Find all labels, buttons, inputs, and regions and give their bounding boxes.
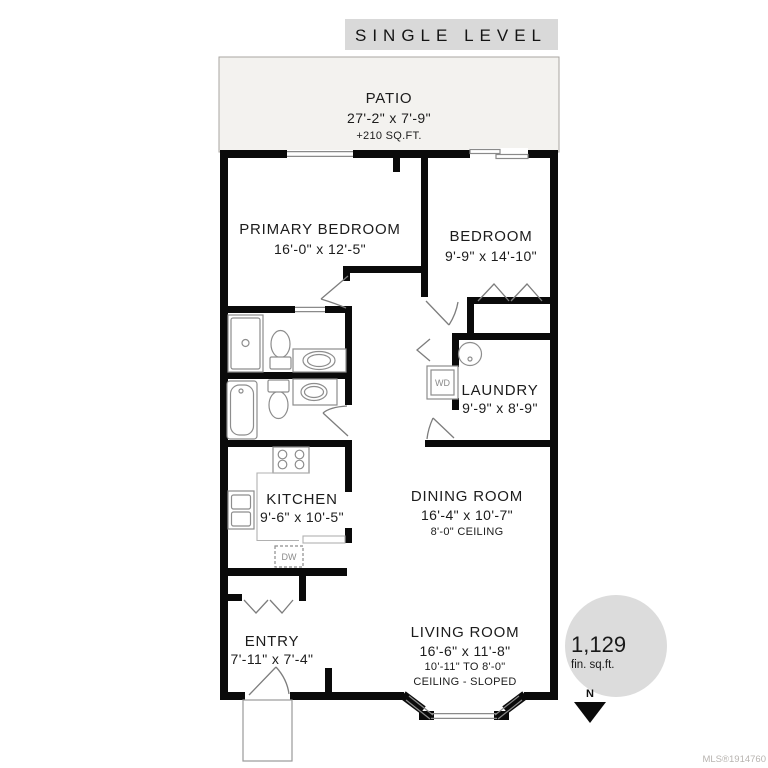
living-room-dims: 16'-6" x 11'-8" <box>419 643 510 659</box>
sliding-door <box>470 148 528 159</box>
toilet-icon <box>270 331 291 370</box>
living-room-label: LIVING ROOM 16'-6" x 11'-8" 10'-11" TO 8… <box>411 624 520 688</box>
area-badge: 1,129 fin. sq.ft. <box>565 595 667 697</box>
living-room-name: LIVING ROOM <box>411 624 520 641</box>
cased-opening <box>295 306 325 313</box>
vanity-sink-icon-2 <box>293 379 337 405</box>
north-arrow-icon <box>574 702 606 723</box>
toilet-icon-2 <box>268 380 289 419</box>
stove-icon <box>273 447 309 473</box>
kitchen-dims: 9'-6" x 10'-5" <box>260 509 344 525</box>
bedroom-label: BEDROOM 9'-9" x 14'-10" <box>445 228 537 264</box>
hall-closet-bifold <box>417 339 430 361</box>
laundry-label: LAUNDRY 9'-9" x 8'-9" <box>461 382 538 416</box>
dining-room-name: DINING ROOM <box>411 488 523 505</box>
patio-area-note: +210 SQ.FT. <box>356 130 421 142</box>
laundry-dims: 9'-9" x 8'-9" <box>462 400 538 416</box>
dishwasher-box: DW <box>275 546 303 567</box>
patio-name: PATIO <box>366 90 413 107</box>
dining-room-dims: 16'-4" x 10'-7" <box>421 507 513 523</box>
entry-label: ENTRY 7'-11" x 7'-4" <box>231 633 314 667</box>
bedroom-dims: 9'-9" x 14'-10" <box>445 248 537 264</box>
dishwasher-label: DW <box>282 552 297 562</box>
area-badge-value: 1,129 <box>571 632 626 657</box>
washer-dryer-label: WD <box>435 378 450 388</box>
kitchen-counter <box>257 473 345 543</box>
banner: SINGLE LEVEL <box>345 19 558 50</box>
area-badge-unit: fin. sq.ft. <box>571 659 614 671</box>
bathroom-door <box>323 406 348 436</box>
entry-name: ENTRY <box>245 633 300 650</box>
kitchen-sink-icon <box>228 491 254 529</box>
kitchen-label: KITCHEN 9'-6" x 10'-5" <box>260 491 344 525</box>
primary-bedroom-label: PRIMARY BEDROOM 16'-0" x 12'-5" <box>239 221 400 257</box>
laundry-door <box>427 418 454 439</box>
entry-stoop <box>243 700 292 761</box>
entry-closet-bifold <box>244 600 293 613</box>
vanity-sink-icon <box>293 349 346 372</box>
laundry-sink-icon <box>459 343 482 366</box>
bay-window <box>403 695 525 719</box>
primary-bedroom-dims: 16'-0" x 12'-5" <box>274 241 366 257</box>
bedroom-door <box>426 301 458 325</box>
floorplan-page: SINGLE LEVEL <box>0 0 768 768</box>
bedroom-name: BEDROOM <box>449 228 532 245</box>
banner-title: SINGLE LEVEL <box>355 26 547 45</box>
watermark: MLS®1914760 <box>702 754 766 765</box>
bathtub-icon <box>227 381 257 439</box>
entry-door <box>249 667 289 695</box>
living-room-ceiling-note: CEILING - SLOPED <box>413 676 516 688</box>
north-label: N <box>586 688 594 700</box>
shower-icon <box>228 315 263 372</box>
dining-room-label: DINING ROOM 16'-4" x 10'-7" 8'-0" CEILIN… <box>411 488 523 538</box>
entry-dims: 7'-11" x 7'-4" <box>231 651 314 667</box>
dining-room-ceiling: 8'-0" CEILING <box>431 526 504 538</box>
primary-bedroom-name: PRIMARY BEDROOM <box>239 221 400 238</box>
patio-dims: 27'-2" x 7'-9" <box>347 110 431 126</box>
laundry-name: LAUNDRY <box>461 382 538 399</box>
kitchen-name: KITCHEN <box>266 491 337 508</box>
window <box>287 150 353 158</box>
living-room-ceiling-range: 10'-11" TO 8'-0" <box>424 661 505 673</box>
floorplan-canvas: SINGLE LEVEL <box>0 0 768 768</box>
washer-dryer-box: WD <box>427 366 458 399</box>
